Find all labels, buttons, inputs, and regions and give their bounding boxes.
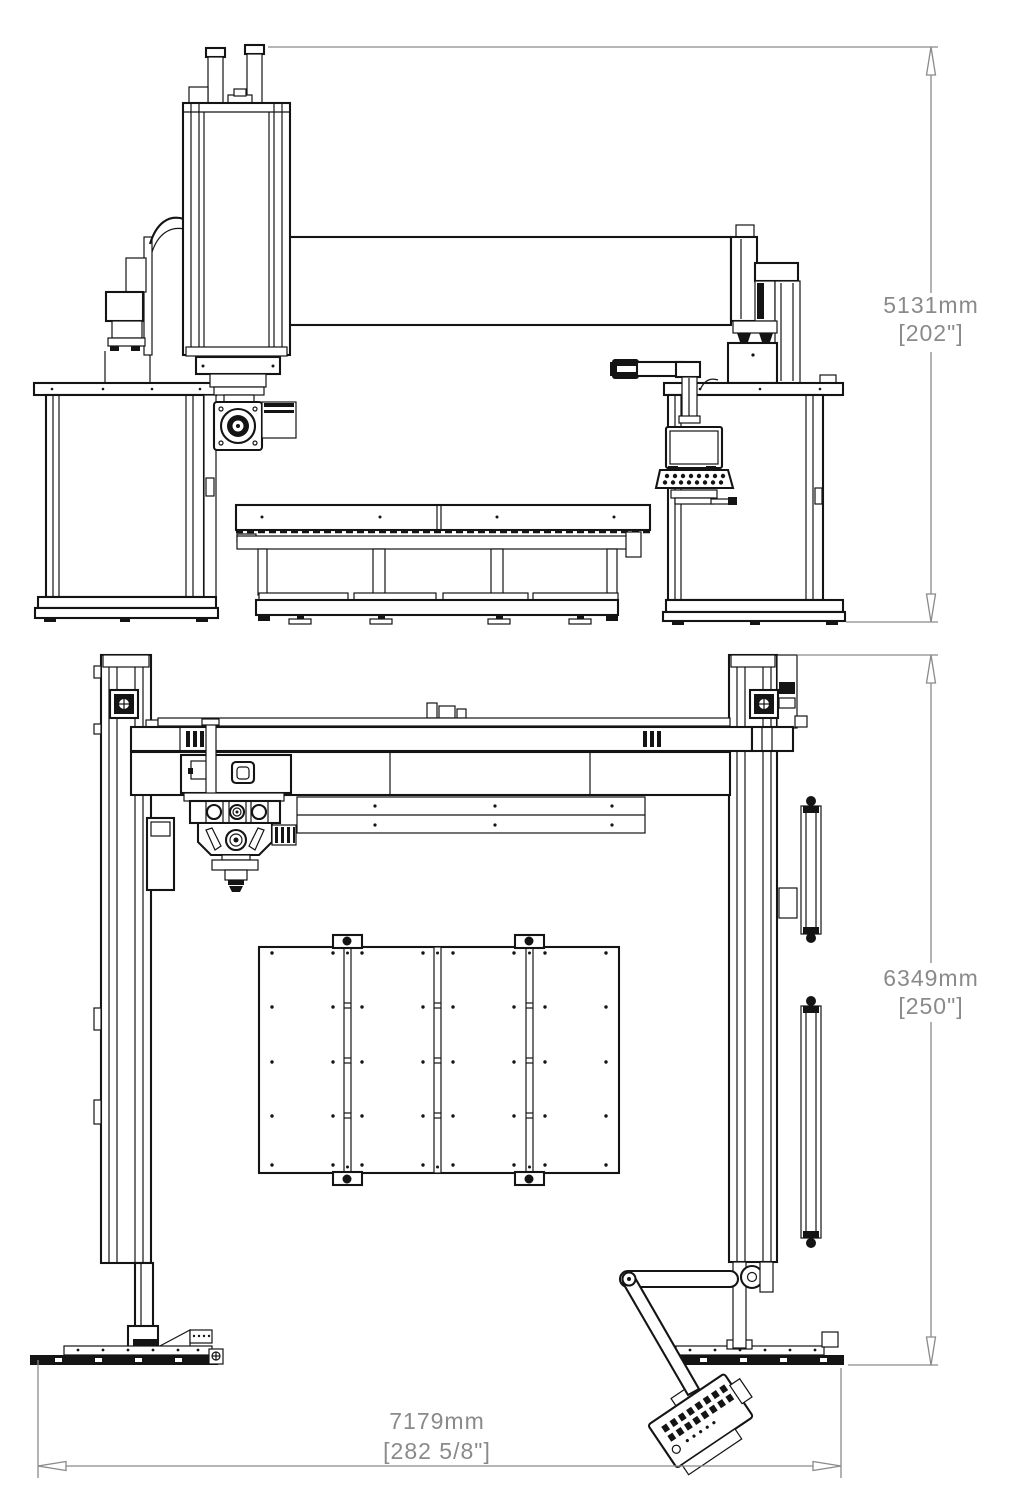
- machine-dimension-drawing: 5131mm [202"]: [0, 0, 1024, 1509]
- control-pendant-front: [610, 359, 737, 505]
- depth-dim-imperial: [250"]: [898, 993, 963, 1019]
- spindle-head-plan: [190, 801, 296, 892]
- dim-arrow-down: [927, 1337, 936, 1365]
- table-slot: [434, 947, 441, 1173]
- height-dim-imperial: [202"]: [898, 320, 963, 346]
- dim-arrow-down: [927, 594, 936, 622]
- left-column: [34, 383, 218, 622]
- dim-arrow-left: [38, 1462, 66, 1471]
- front-view: 5131mm [202"]: [34, 45, 979, 625]
- side-cylinder: [801, 996, 821, 1248]
- crossbeam-plan: [131, 703, 807, 801]
- pendant-device: [643, 1360, 768, 1478]
- plan-view: 6349mm [250"] 7179mm [282 5/8"]: [30, 655, 979, 1478]
- table-slot: [344, 947, 351, 1173]
- beam-end-assembly: [728, 225, 800, 383]
- table-slot: [526, 947, 533, 1173]
- dim-arrow-up: [927, 47, 936, 75]
- side-cylinder: [801, 796, 821, 943]
- gantry-beam: [258, 237, 731, 325]
- pendant-arm-plan: [620, 1262, 773, 1478]
- height-dim-metric: 5131mm: [883, 292, 978, 318]
- drawing-page: 5131mm [202"]: [0, 0, 1024, 1509]
- width-dim-imperial: [282 5/8"]: [383, 1438, 491, 1464]
- work-table-plan: [259, 935, 619, 1185]
- depth-dimension: 6349mm [250"]: [798, 655, 979, 1365]
- lower-rail-plan: [297, 797, 645, 833]
- work-table-front: [236, 505, 650, 624]
- depth-dim-metric: 6349mm: [883, 965, 978, 991]
- z-axis-ram: [105, 45, 290, 383]
- dim-arrow-up: [927, 655, 936, 683]
- width-dim-metric: 7179mm: [389, 1408, 484, 1434]
- dim-arrow-right: [813, 1462, 841, 1471]
